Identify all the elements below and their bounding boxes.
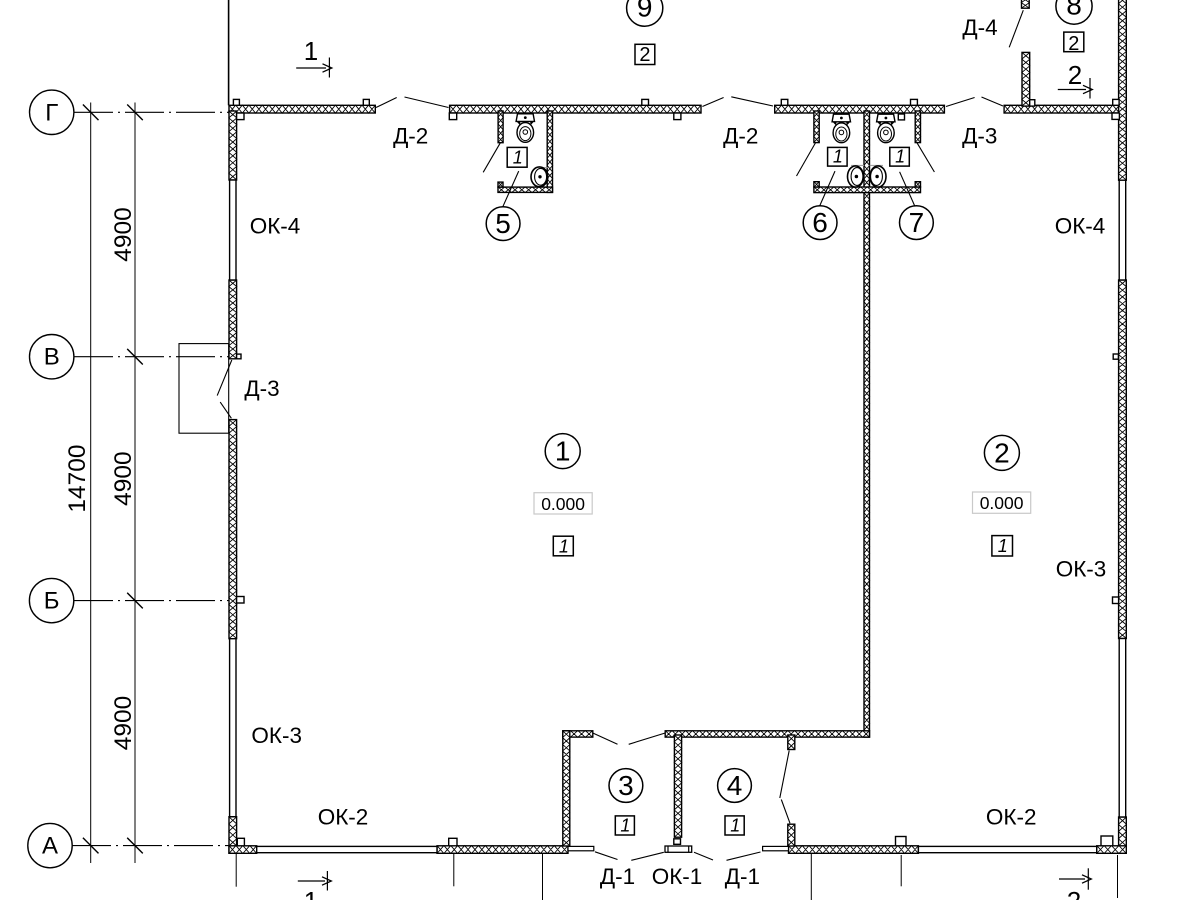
svg-text:4900: 4900	[110, 451, 137, 506]
svg-text:9: 9	[637, 0, 653, 23]
svg-text:4: 4	[727, 770, 743, 801]
svg-text:3: 3	[618, 770, 634, 801]
svg-text:1: 1	[513, 148, 523, 168]
svg-text:1: 1	[555, 436, 571, 467]
svg-text:ОК-3: ОК-3	[1056, 557, 1107, 582]
svg-text:В: В	[44, 344, 60, 371]
svg-text:1: 1	[304, 36, 318, 66]
svg-text:7: 7	[909, 207, 925, 238]
svg-text:6: 6	[812, 207, 828, 238]
svg-text:Г: Г	[45, 99, 58, 126]
svg-text:14700: 14700	[64, 445, 91, 513]
svg-text:0.000: 0.000	[541, 494, 585, 514]
svg-text:1: 1	[620, 816, 630, 836]
svg-text:Д-3: Д-3	[244, 376, 279, 401]
svg-text:4900: 4900	[110, 696, 137, 751]
svg-text:2: 2	[1067, 886, 1081, 900]
svg-text:2: 2	[639, 44, 650, 66]
svg-text:8: 8	[1066, 0, 1082, 21]
svg-text:ОК-4: ОК-4	[1055, 214, 1106, 239]
svg-text:2: 2	[1068, 33, 1079, 55]
svg-text:1: 1	[998, 536, 1008, 556]
svg-text:ОК-2: ОК-2	[986, 804, 1037, 829]
svg-text:1: 1	[895, 147, 905, 167]
svg-text:ОК-2: ОК-2	[318, 805, 369, 830]
svg-text:1: 1	[730, 816, 740, 836]
svg-text:5: 5	[495, 208, 511, 239]
svg-text:0.000: 0.000	[980, 493, 1024, 513]
svg-text:1: 1	[833, 147, 843, 167]
svg-text:ОК-3: ОК-3	[251, 723, 302, 748]
svg-text:ОК-1: ОК-1	[652, 864, 703, 889]
svg-text:2: 2	[994, 437, 1010, 468]
svg-text:Д-3: Д-3	[962, 124, 997, 149]
svg-text:4900: 4900	[110, 207, 137, 262]
svg-text:А: А	[42, 833, 58, 860]
svg-text:2: 2	[1068, 60, 1082, 90]
svg-text:Д-1: Д-1	[725, 864, 760, 889]
svg-text:ОК-4: ОК-4	[250, 214, 301, 239]
svg-text:1: 1	[304, 886, 318, 900]
svg-text:Д-1: Д-1	[600, 864, 635, 889]
svg-text:1: 1	[559, 536, 569, 556]
svg-text:Д-2: Д-2	[723, 124, 758, 149]
svg-text:Д-4: Д-4	[962, 15, 997, 40]
svg-text:Д-2: Д-2	[393, 124, 428, 149]
svg-text:Б: Б	[44, 588, 60, 615]
